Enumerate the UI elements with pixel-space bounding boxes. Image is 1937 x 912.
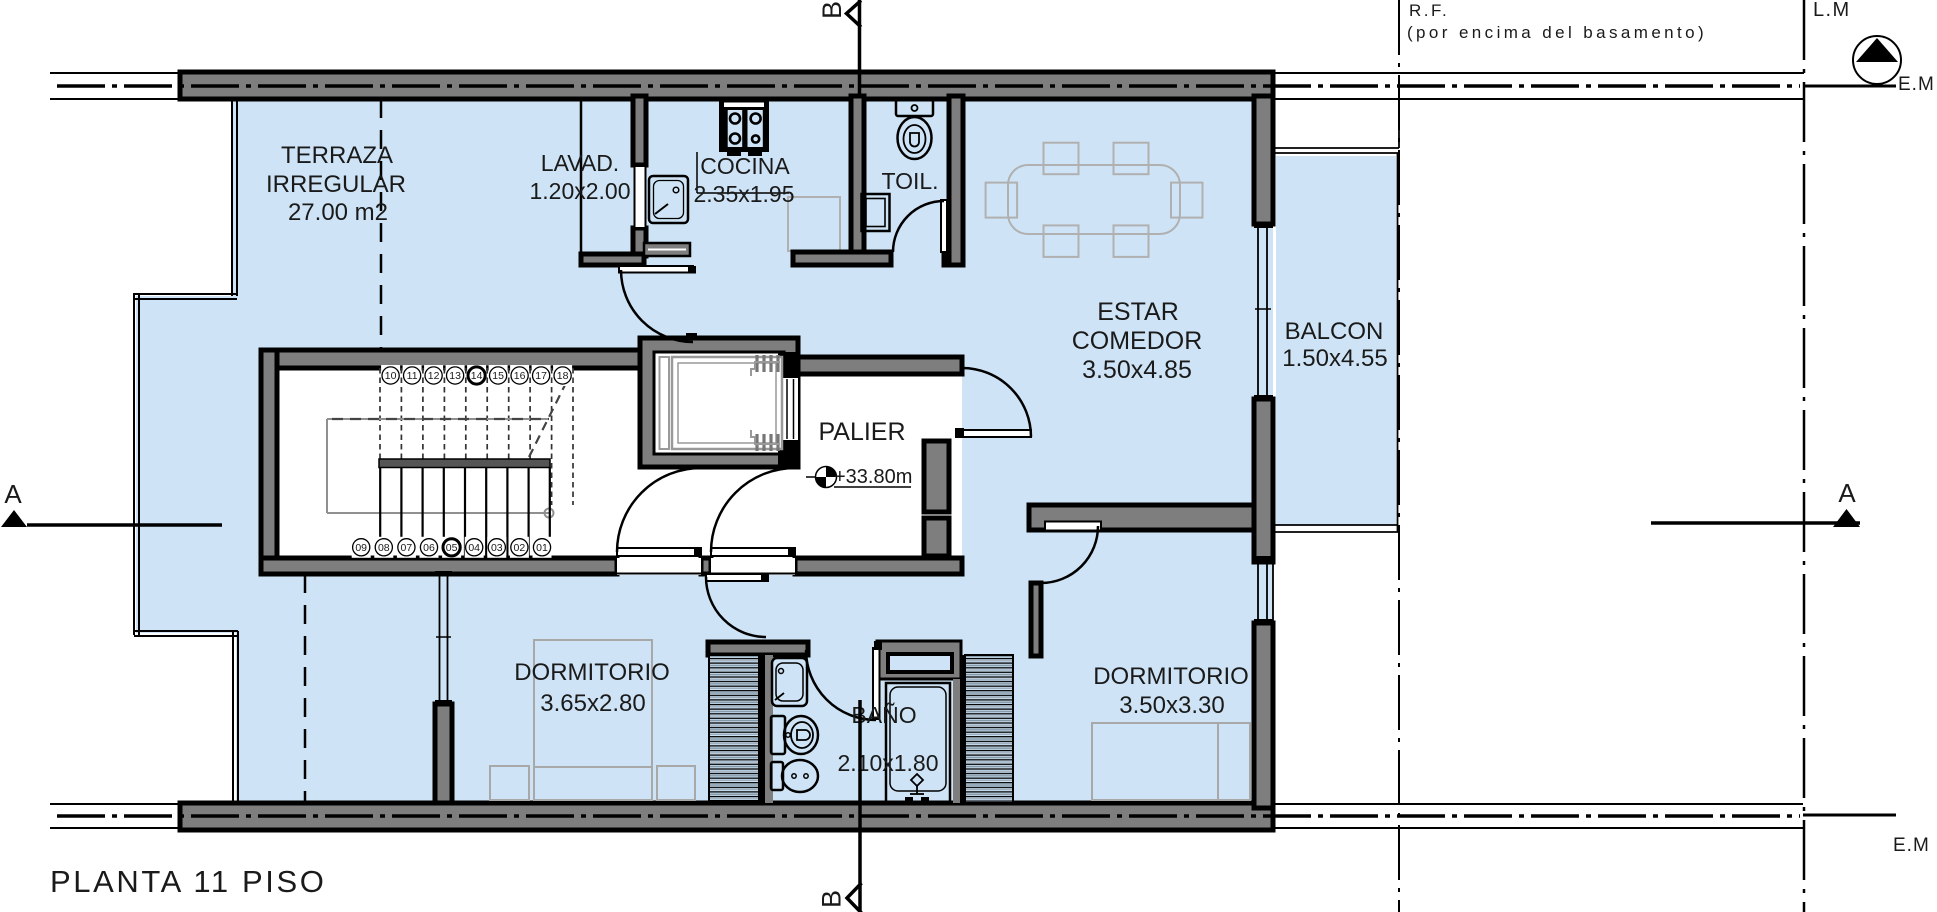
svg-text:COMEDOR: COMEDOR bbox=[1072, 327, 1203, 355]
svg-text:B: B bbox=[817, 890, 847, 908]
svg-text:16: 16 bbox=[514, 370, 526, 382]
svg-text:(por encima del basamento): (por encima del basamento) bbox=[1407, 23, 1707, 42]
svg-text:03: 03 bbox=[491, 542, 503, 554]
svg-text:2.10x1.80: 2.10x1.80 bbox=[837, 750, 938, 776]
svg-text:PALIER: PALIER bbox=[818, 418, 905, 446]
svg-text:06: 06 bbox=[423, 542, 435, 554]
svg-text:08: 08 bbox=[378, 542, 390, 554]
svg-text:1.20x2.00: 1.20x2.00 bbox=[529, 178, 630, 204]
svg-text:07: 07 bbox=[401, 542, 413, 554]
svg-text:27.00 m2: 27.00 m2 bbox=[288, 199, 388, 226]
svg-text:3.50x3.30: 3.50x3.30 bbox=[1119, 692, 1224, 719]
svg-text:LAVAD.: LAVAD. bbox=[541, 150, 619, 176]
svg-text:A: A bbox=[4, 479, 22, 509]
svg-text:15: 15 bbox=[492, 370, 504, 382]
svg-text:COCINA: COCINA bbox=[700, 153, 790, 179]
svg-text:17: 17 bbox=[535, 370, 547, 382]
svg-text:12: 12 bbox=[428, 370, 440, 382]
svg-text:14: 14 bbox=[471, 370, 483, 382]
svg-text:DORMITORIO: DORMITORIO bbox=[514, 659, 670, 686]
svg-text:02: 02 bbox=[514, 542, 526, 554]
svg-text:R.F.: R.F. bbox=[1409, 1, 1449, 20]
svg-text:DORMITORIO: DORMITORIO bbox=[1093, 663, 1249, 690]
svg-text:TERRAZA: TERRAZA bbox=[281, 142, 393, 169]
svg-text:3.65x2.80: 3.65x2.80 bbox=[540, 690, 645, 717]
svg-text:10: 10 bbox=[385, 370, 397, 382]
svg-text:3.50x4.85: 3.50x4.85 bbox=[1082, 356, 1192, 384]
svg-text:PLANTA 11 PISO: PLANTA 11 PISO bbox=[50, 864, 326, 899]
svg-text:A: A bbox=[1838, 478, 1856, 508]
svg-text:04: 04 bbox=[468, 542, 480, 554]
svg-text:BALCON: BALCON bbox=[1285, 318, 1384, 345]
svg-text:18: 18 bbox=[557, 370, 569, 382]
svg-text:ESTAR: ESTAR bbox=[1097, 298, 1179, 326]
svg-text:TOIL.: TOIL. bbox=[881, 168, 938, 194]
svg-text:2.35x1.95: 2.35x1.95 bbox=[693, 181, 794, 207]
svg-text:09: 09 bbox=[355, 542, 367, 554]
svg-text:E.M: E.M bbox=[1898, 74, 1935, 95]
svg-text:L.M: L.M bbox=[1813, 0, 1851, 21]
svg-text:IRREGULAR: IRREGULAR bbox=[266, 171, 406, 198]
svg-text:01: 01 bbox=[536, 542, 548, 554]
svg-text:05: 05 bbox=[446, 542, 458, 554]
svg-text:1.50x4.55: 1.50x4.55 bbox=[1282, 345, 1387, 372]
svg-text:E.M: E.M bbox=[1893, 835, 1930, 856]
svg-text:B: B bbox=[817, 1, 847, 19]
svg-text:+33.80m: +33.80m bbox=[834, 466, 912, 488]
svg-text:11: 11 bbox=[407, 370, 418, 382]
svg-text:13: 13 bbox=[449, 370, 461, 382]
